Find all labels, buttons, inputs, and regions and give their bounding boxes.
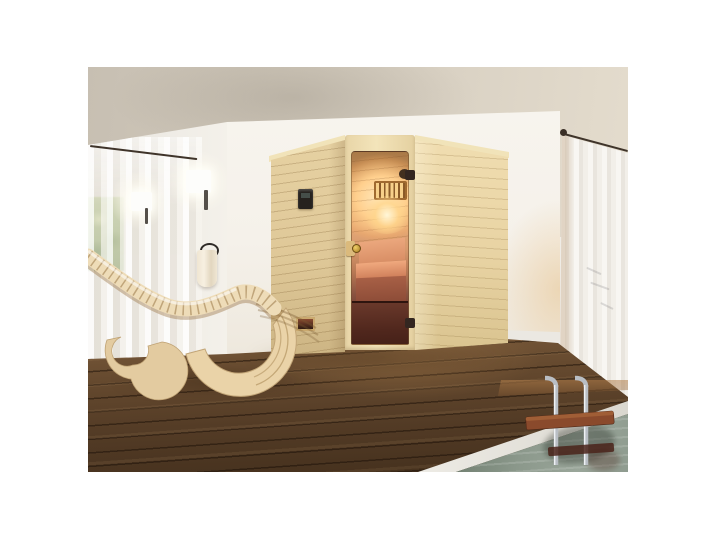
sauna-control-panel xyxy=(298,189,313,209)
sauna-room-photo xyxy=(88,67,628,472)
sauna-lamp-glow xyxy=(364,196,409,234)
door-knob-icon xyxy=(352,244,361,253)
control-screen xyxy=(301,193,310,198)
wall-lamp-left xyxy=(131,192,152,211)
pool-ladder xyxy=(518,377,628,472)
lamp-bracket-icon xyxy=(145,208,148,224)
lamp-bracket-icon xyxy=(204,190,208,210)
rod-finial-icon xyxy=(560,129,567,136)
wood-lounger xyxy=(88,242,326,412)
door-hinge-icon xyxy=(405,318,415,328)
sauna-interior-floor xyxy=(352,301,409,345)
lounger-rear-support xyxy=(105,337,188,400)
sauna-wall-right xyxy=(415,140,509,350)
door-hinge-icon xyxy=(405,170,415,180)
